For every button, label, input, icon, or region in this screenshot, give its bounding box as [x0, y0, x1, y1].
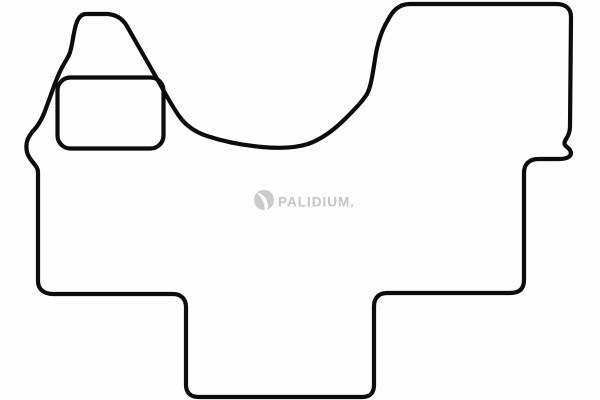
floor-mat-outline-drawing: PALIDIUM. — [0, 0, 600, 400]
heel-pad-cutout-outline — [58, 78, 164, 149]
palidium-brand-text: PALIDIUM. — [278, 194, 355, 210]
product-image-canvas: PALIDIUM. — [0, 0, 600, 400]
palidium-watermark: PALIDIUM. — [254, 190, 355, 212]
